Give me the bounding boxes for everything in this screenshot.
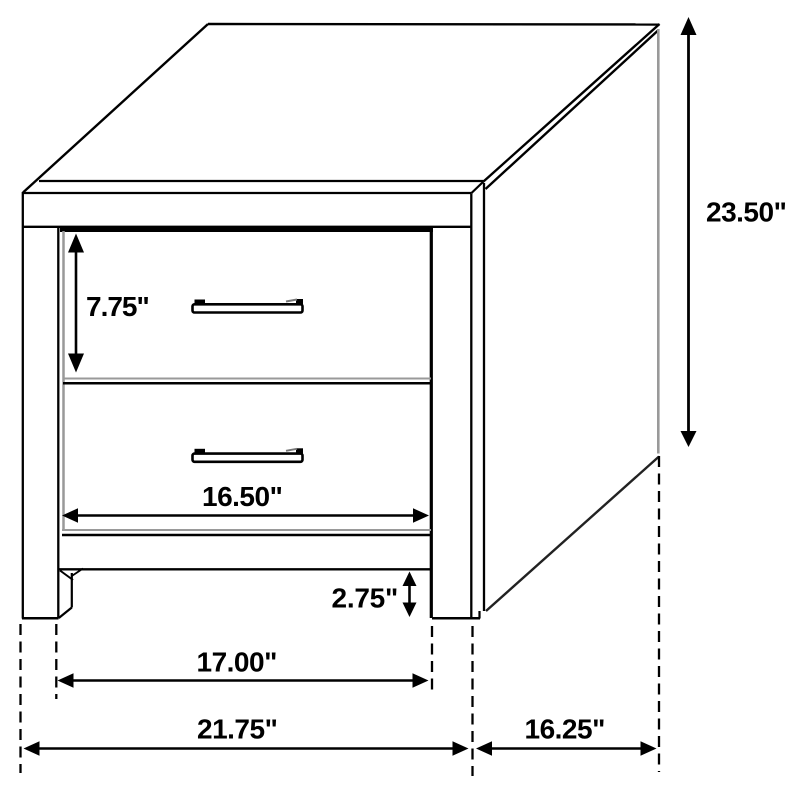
svg-text:23.50": 23.50" bbox=[706, 197, 786, 228]
svg-text:16.50": 16.50" bbox=[202, 481, 282, 512]
svg-text:17.00": 17.00" bbox=[197, 647, 277, 678]
svg-text:2.75": 2.75" bbox=[332, 583, 399, 614]
svg-text:21.75": 21.75" bbox=[197, 714, 277, 745]
svg-text:16.25": 16.25" bbox=[525, 714, 605, 745]
svg-text:7.75": 7.75" bbox=[86, 291, 149, 322]
